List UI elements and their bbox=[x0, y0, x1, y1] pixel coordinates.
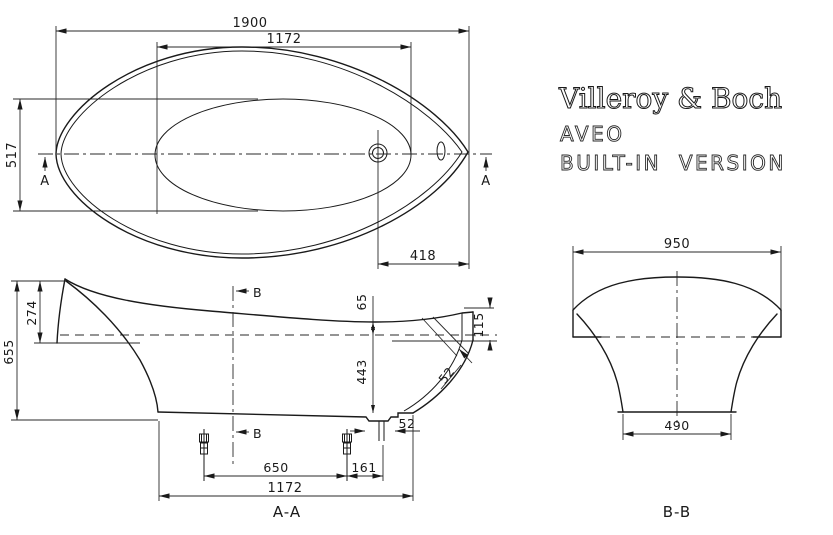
tub-outline-plan bbox=[56, 47, 468, 258]
overflow-symbol bbox=[437, 142, 445, 160]
dim-overall-height: 655 bbox=[1, 339, 16, 364]
dim-drain-offset: 418 bbox=[410, 249, 436, 264]
section-aa-label: A-A bbox=[273, 503, 301, 521]
dim-base-length: 1172 bbox=[267, 481, 302, 496]
section-aa-view: B B 655 274 65 443 115 52 bbox=[1, 279, 497, 521]
dim-basin-length: 1172 bbox=[266, 32, 301, 47]
dim-sump-width: 52 bbox=[399, 416, 416, 431]
dim-basin-width: 517 bbox=[5, 142, 20, 168]
product-name: AVEO bbox=[560, 122, 624, 146]
title-block: Villeroy & Boch AVEO BUILT-IN VERSION bbox=[558, 82, 786, 175]
dim-rim-to-waterline: 65 bbox=[354, 294, 369, 311]
plan-dimension-lines bbox=[13, 26, 469, 269]
cut-label-b-bottom: B bbox=[253, 426, 262, 441]
dim-overall-width: 950 bbox=[664, 237, 690, 252]
dim-front-rim-height: 115 bbox=[471, 312, 486, 337]
section-cut-markers-a: A A bbox=[40, 157, 490, 189]
adjustable-foot-right bbox=[343, 429, 352, 481]
brand-logo: Villeroy & Boch bbox=[558, 82, 782, 115]
dim-base-width: 490 bbox=[664, 418, 689, 433]
plan-view: A A 1900 1172 517 418 bbox=[5, 16, 492, 269]
cut-label-a-right: A bbox=[481, 174, 490, 189]
product-variant: BUILT-IN VERSION bbox=[560, 151, 786, 175]
dim-back-rim-height: 274 bbox=[24, 300, 39, 325]
cut-label-b-top: B bbox=[253, 285, 262, 300]
technical-drawing-sheet: A A 1900 1172 517 418 bbox=[0, 0, 833, 535]
section-bb-view: 950 490 B-B bbox=[573, 237, 781, 521]
dim-rim-to-floor: 443 bbox=[354, 359, 369, 384]
plan-dimension-texts: 1900 1172 517 418 bbox=[5, 16, 436, 264]
aa-dimension-lines bbox=[11, 281, 497, 501]
dim-overall-length: 1900 bbox=[232, 16, 267, 31]
bathtub-technical-drawing: A A 1900 1172 517 418 bbox=[0, 0, 833, 535]
adjustable-foot-left bbox=[200, 429, 209, 481]
section-bb-label: B-B bbox=[663, 503, 691, 521]
section-cut-markers-b: B B bbox=[233, 285, 262, 466]
dim-foot-to-outlet: 161 bbox=[351, 460, 376, 475]
cut-label-a-left: A bbox=[40, 174, 49, 189]
dim-feet-spacing: 650 bbox=[263, 460, 288, 475]
